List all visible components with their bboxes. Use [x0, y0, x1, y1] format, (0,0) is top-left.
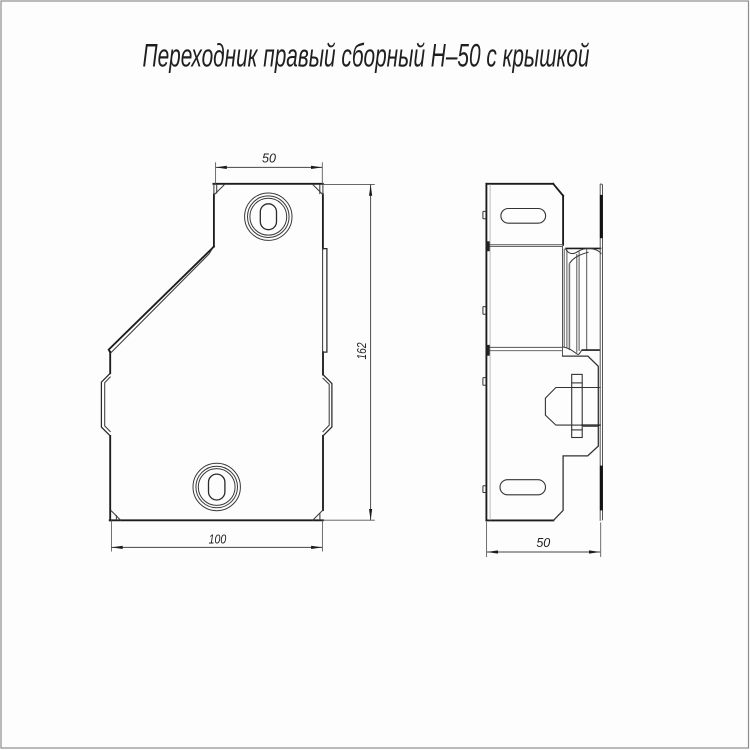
- svg-text:100: 100: [209, 532, 227, 546]
- svg-text:162: 162: [355, 342, 369, 359]
- svg-text:50: 50: [536, 536, 550, 550]
- svg-text:Переходник правый сборный Н–50: Переходник правый сборный Н–50 с крышкой: [143, 38, 590, 74]
- svg-text:50: 50: [262, 152, 276, 166]
